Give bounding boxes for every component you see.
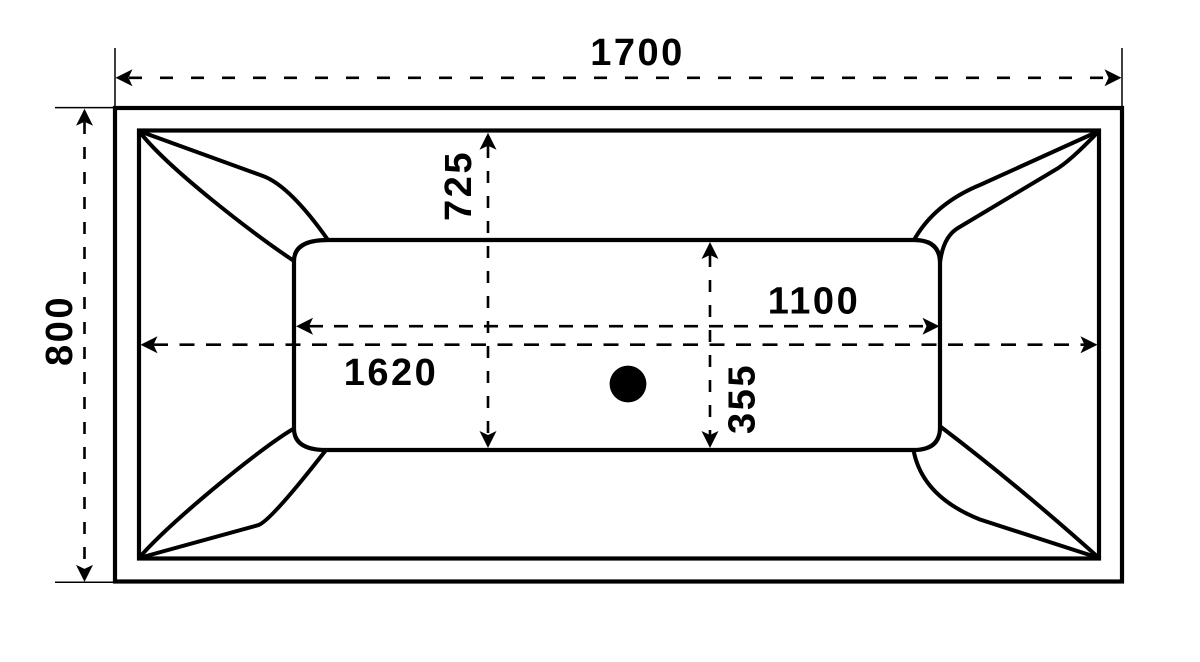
svg-text:1100: 1100 — [768, 281, 860, 323]
svg-text:800: 800 — [39, 295, 81, 366]
svg-text:725: 725 — [438, 150, 480, 221]
svg-text:1700: 1700 — [590, 32, 685, 74]
svg-text:1620: 1620 — [344, 352, 439, 394]
svg-text:355: 355 — [722, 363, 764, 434]
